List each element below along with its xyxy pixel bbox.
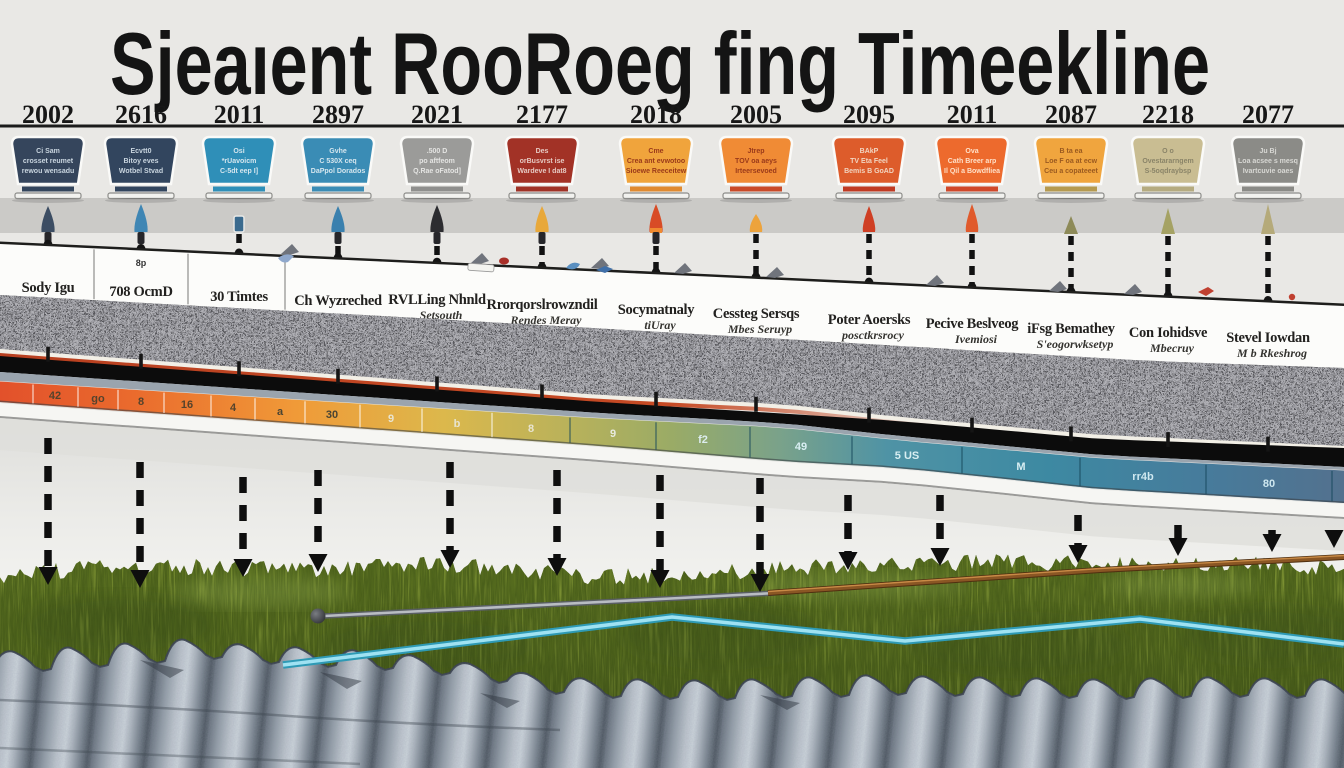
svg-text:Jtrep: Jtrep: [747, 148, 764, 155]
svg-text:Ju Bj: Ju Bj: [1259, 148, 1276, 155]
svg-text:Socymatnaly: Socymatnaly: [618, 302, 696, 318]
svg-text:M b Rkeshrog: M b Rkeshrog: [1236, 346, 1307, 360]
svg-text:Pecive Beslveog: Pecive Beslveog: [926, 316, 1020, 332]
svg-text:80: 80: [1263, 478, 1275, 490]
svg-text:Gvhe: Gvhe: [329, 148, 347, 155]
svg-text:Con Iohidsve: Con Iohidsve: [1129, 325, 1208, 341]
svg-text:Q.Rae oFatod]: Q.Rae oFatod]: [413, 168, 461, 175]
svg-text:Ceu a copateeet: Ceu a copateeet: [1044, 168, 1098, 175]
svg-text:Sody Igu: Sody Igu: [22, 280, 75, 296]
svg-text:Poter Aoersks: Poter Aoersks: [828, 312, 911, 328]
svg-text:Stevel Iowdan: Stevel Iowdan: [1226, 330, 1310, 346]
svg-text:Sioewe Reeceitew: Sioewe Reeceitew: [626, 168, 687, 175]
svg-text:Mbes Seruyp: Mbes Seruyp: [727, 322, 792, 336]
svg-text:tiUray: tiUray: [644, 318, 676, 332]
svg-text:Ova: Ova: [965, 148, 978, 155]
svg-text:Loe F oa at ecw: Loe F oa at ecw: [1045, 158, 1098, 165]
svg-text:30 Timtes: 30 Timtes: [210, 289, 268, 305]
svg-text:TOV oa aeys: TOV oa aeys: [735, 158, 777, 165]
svg-text:BAkP: BAkP: [860, 148, 879, 155]
svg-text:Cme: Cme: [648, 148, 663, 155]
svg-text:9: 9: [610, 428, 616, 440]
svg-text:Ovestararngem: Ovestararngem: [1142, 158, 1193, 165]
svg-text:708 OcmD: 708 OcmD: [109, 284, 172, 300]
svg-text:Il Qil a Bowdfliea: Il Qil a Bowdfliea: [944, 168, 1000, 175]
svg-text:42: 42: [49, 390, 61, 402]
svg-text:Crea ant evwotoo: Crea ant evwotoo: [627, 158, 685, 165]
svg-text:rewou wensadu: rewou wensadu: [22, 168, 75, 175]
svg-text:B ta ea: B ta ea: [1060, 148, 1083, 155]
svg-text:5 US: 5 US: [895, 450, 919, 462]
svg-text:8p: 8p: [136, 258, 147, 268]
svg-text:go: go: [91, 393, 105, 405]
svg-text:Sjeaıent RooRoeg fing Timeekli: Sjeaıent RooRoeg fing Timeekline: [110, 14, 1210, 113]
svg-text:8: 8: [138, 396, 144, 408]
svg-text:f2: f2: [698, 434, 708, 446]
svg-text:DaPpol Dorados: DaPpol Dorados: [311, 168, 366, 175]
svg-text:O o: O o: [1162, 148, 1174, 155]
svg-text:TV Eta Feel: TV Eta Feel: [850, 158, 888, 165]
svg-text:iFsg Bemathey: iFsg Bemathey: [1027, 321, 1116, 337]
svg-text:Ecvtt0: Ecvtt0: [130, 148, 151, 155]
svg-text:po aftfeom: po aftfeom: [419, 158, 455, 165]
svg-text:Ivemiosi: Ivemiosi: [954, 332, 998, 346]
svg-text:Rrorqorslrowzndil: Rrorqorslrowzndil: [487, 297, 598, 313]
svg-text:RVLLing Nhnld: RVLLing Nhnld: [388, 292, 486, 308]
svg-text:Irteersevoed: Irteersevoed: [735, 168, 777, 175]
svg-text:9: 9: [388, 413, 394, 425]
svg-text:Ivartcuvie oaes: Ivartcuvie oaes: [1243, 168, 1294, 175]
svg-text:Cath Breer arp: Cath Breer arp: [948, 158, 997, 165]
svg-text:Loa acsee s mesq: Loa acsee s mesq: [1238, 158, 1298, 165]
svg-text:Bitoy eves: Bitoy eves: [123, 158, 158, 165]
svg-text:Ch Wyzreched: Ch Wyzreched: [294, 293, 382, 309]
svg-text:Ci Sam: Ci Sam: [36, 148, 60, 155]
svg-text:.500 D: .500 D: [427, 148, 448, 155]
svg-text:8: 8: [528, 423, 534, 435]
svg-text:C-5dt eep I]: C-5dt eep I]: [220, 168, 258, 175]
svg-text:Bemis B GoAD: Bemis B GoAD: [844, 168, 894, 175]
svg-text:b: b: [454, 418, 461, 430]
svg-text:crosset reumet: crosset reumet: [23, 158, 74, 165]
svg-text:Des: Des: [536, 148, 549, 155]
svg-text:M: M: [1016, 461, 1025, 473]
svg-text:C 530X ceq: C 530X ceq: [319, 158, 356, 165]
svg-text:*rUavoicm: *rUavoicm: [222, 158, 257, 165]
svg-text:16: 16: [181, 399, 193, 411]
svg-text:S'eogorwksetyp: S'eogorwksetyp: [1037, 337, 1114, 351]
svg-text:49: 49: [795, 441, 807, 453]
svg-text:a: a: [277, 406, 284, 418]
svg-text:S-5oqdraybsp: S-5oqdraybsp: [1145, 168, 1192, 175]
svg-text:30: 30: [326, 409, 338, 421]
svg-text:Cessteg Sersqs: Cessteg Sersqs: [713, 306, 800, 322]
svg-text:Osi: Osi: [233, 148, 244, 155]
svg-text:Wotbel Stvad: Wotbel Stvad: [119, 168, 163, 175]
svg-text:4: 4: [230, 402, 237, 414]
svg-text:rr4b: rr4b: [1132, 471, 1154, 483]
svg-text:posctkrsrocy: posctkrsrocy: [841, 328, 905, 342]
svg-text:Wardeve I dat8: Wardeve I dat8: [517, 168, 566, 175]
svg-text:orBusvrst ise: orBusvrst ise: [520, 158, 565, 165]
svg-text:Mbecruy: Mbecruy: [1149, 341, 1195, 355]
